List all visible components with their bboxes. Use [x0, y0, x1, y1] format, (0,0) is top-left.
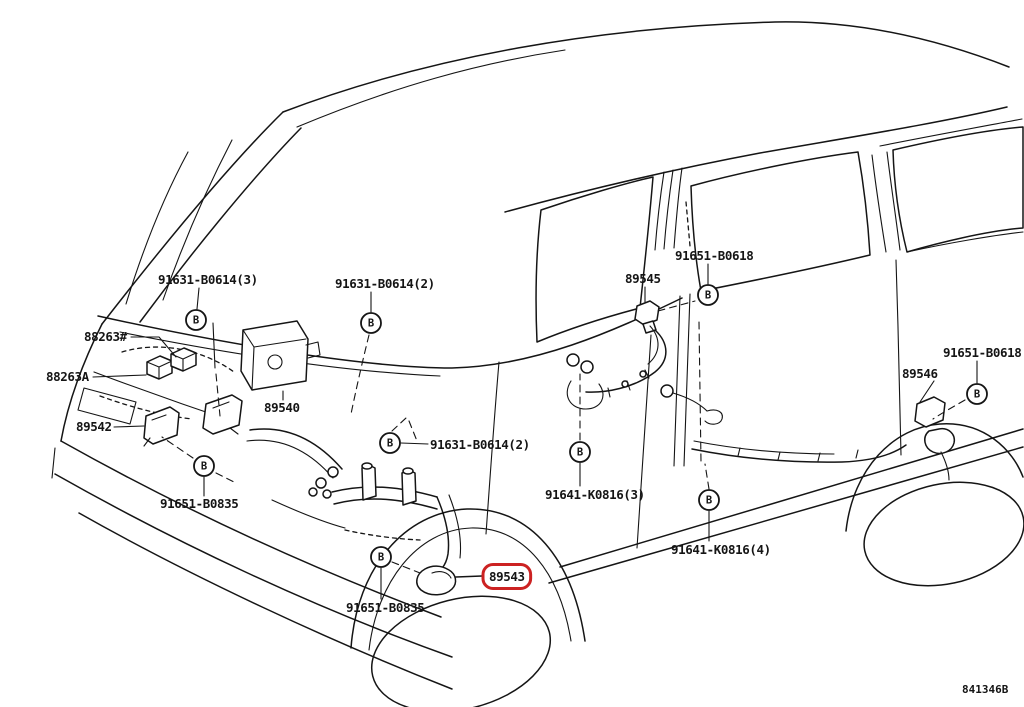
line-art-path: [567, 354, 579, 366]
line-art-path: [362, 463, 372, 469]
line-art-path: [694, 441, 834, 454]
line-art-path: [893, 127, 1023, 252]
part-label-91651-B0835[interactable]: 91651-B0835: [160, 496, 238, 511]
line-art-path: [369, 528, 571, 650]
line-art-path: [351, 335, 369, 414]
callout-letter: B: [974, 389, 980, 401]
line-art-path: [297, 50, 565, 127]
part-label-89543[interactable]: 89543: [489, 569, 525, 584]
callout-marker-B-7[interactable]: B: [698, 285, 718, 305]
part-label-89540[interactable]: 89540: [264, 400, 300, 415]
line-art-path: [345, 530, 420, 540]
line-art-path: [925, 429, 955, 454]
part-label-91631-B0614(2)[interactable]: 91631-B0614(2): [335, 276, 435, 291]
line-art-path: [505, 107, 1007, 212]
callout-marker-B-1[interactable]: B: [186, 310, 206, 330]
line-art-path: [403, 468, 413, 474]
line-art-path: [334, 499, 437, 509]
callout-marker-B-8[interactable]: B: [699, 490, 719, 510]
callout-letter: B: [577, 447, 583, 459]
part-label-91631-B0614(3)[interactable]: 91631-B0614(3): [158, 272, 258, 287]
line-art-path: [699, 322, 701, 462]
line-art-path: [362, 465, 376, 500]
line-art-path: [323, 490, 331, 498]
part-label-89546[interactable]: 89546: [902, 366, 938, 381]
line-art-path: [635, 301, 659, 325]
line-art-path: [581, 361, 593, 373]
part-label-91631-B0614(2)[interactable]: 91631-B0614(2): [430, 437, 530, 452]
line-art-path: [640, 371, 646, 377]
line-art-path: [316, 478, 326, 488]
callout-letter: B: [706, 495, 712, 507]
part-rocker-harness: [692, 441, 906, 462]
callout-letter: B: [201, 461, 207, 473]
line-art-path: [449, 495, 461, 558]
line-art-path: [705, 410, 722, 424]
line-art-path: [896, 260, 901, 455]
callout-letter: B: [378, 552, 384, 564]
part-label-88263A[interactable]: 88263A: [46, 369, 90, 384]
part-88263-grommets: [147, 348, 196, 379]
line-art-path: [567, 381, 603, 409]
line-art-path: [691, 152, 870, 291]
callout-letter: B: [193, 315, 199, 327]
callout-marker-B-9[interactable]: B: [967, 384, 987, 404]
leader-lines: [93, 264, 977, 599]
line-art-path: [872, 155, 886, 252]
line-art-path: [93, 375, 146, 377]
part-label-88263#[interactable]: 88263#: [84, 329, 128, 344]
line-art-path: [114, 426, 144, 427]
callout-letter: B: [368, 318, 374, 330]
line-art-path: [213, 323, 215, 368]
line-art-path: [351, 509, 585, 648]
part-label-91641-K0816(4)[interactable]: 91641-K0816(4): [671, 542, 771, 557]
line-art-path: [549, 447, 1023, 583]
line-art-path: [674, 168, 682, 248]
line-art-path: [880, 119, 1022, 146]
line-art-path: [661, 385, 673, 397]
line-art-path: [401, 443, 428, 444]
line-art-path: [664, 170, 673, 249]
line-art-path: [622, 381, 628, 387]
callout-letter: B: [387, 438, 393, 450]
part-sliding-door-sensor: [661, 385, 722, 424]
parts-diagram-page: BBBBBBBBB91631-B0614(3)91631-B0614(2)882…: [0, 0, 1024, 707]
line-art-path: [309, 488, 317, 496]
line-art-path: [673, 393, 707, 411]
parts-diagram-canvas: BBBBBBBBB91631-B0614(3)91631-B0614(2)882…: [0, 0, 1024, 707]
line-art-path: [61, 441, 441, 617]
callout-letter: B: [705, 290, 711, 302]
line-art-path: [674, 296, 680, 466]
line-art-path: [247, 440, 333, 478]
part-89545-harness: [567, 301, 666, 409]
callout-marker-B-6[interactable]: B: [570, 442, 590, 462]
callout-marker-B-4[interactable]: B: [380, 433, 400, 453]
part-label-91651-B0835[interactable]: 91651-B0835: [346, 600, 424, 615]
part-label-91651-B0618[interactable]: 91651-B0618: [675, 248, 753, 263]
line-art-path: [430, 497, 449, 576]
line-art-path: [705, 464, 709, 489]
line-art-path: [328, 467, 338, 477]
diagram-code: 841346B: [962, 683, 1009, 696]
line-art-path: [907, 232, 1023, 252]
line-art-path: [684, 294, 690, 466]
part-89543-sensor: [417, 566, 456, 595]
part-label-89542[interactable]: 89542: [76, 419, 112, 434]
part-label-91641-K0816(3)[interactable]: 91641-K0816(3): [545, 487, 645, 502]
callout-marker-B-5[interactable]: B: [371, 547, 391, 567]
part-label-91651-B0618[interactable]: 91651-B0618: [943, 345, 1021, 360]
van-body-line-art: [52, 22, 1024, 707]
line-art-path: [655, 172, 664, 250]
line-art-path: [686, 202, 690, 246]
line-art-path: [203, 395, 242, 434]
line-art-path: [332, 487, 437, 497]
part-front-sensor-assembly: [247, 429, 461, 576]
line-art-path: [456, 576, 482, 577]
line-art-path: [417, 566, 456, 595]
line-art-path: [637, 335, 651, 548]
line-art-path: [941, 452, 949, 480]
line-art-path: [915, 397, 945, 427]
callout-marker-B-3[interactable]: B: [194, 456, 214, 476]
line-art-path: [392, 562, 420, 573]
line-art-path: [197, 288, 199, 309]
line-art-path: [283, 22, 1009, 112]
part-label-89545[interactable]: 89545: [625, 271, 661, 286]
labels-and-callouts-layer: BBBBBBBBB91631-B0614(3)91631-B0614(2)882…: [46, 248, 1021, 615]
line-art-path: [402, 470, 416, 505]
callout-marker-B-2[interactable]: B: [361, 313, 381, 333]
part-89542-sensor-bracket: [144, 395, 242, 446]
line-art-path: [140, 128, 301, 322]
